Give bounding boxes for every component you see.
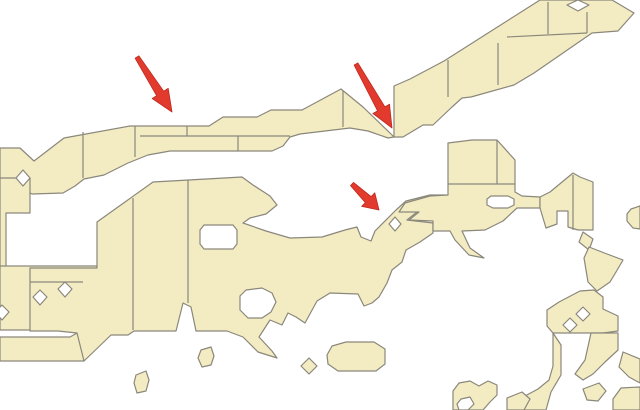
annotation-arrow-3 (351, 182, 380, 210)
se-band-east (575, 333, 618, 380)
right-east-piece (540, 173, 593, 230)
hole-rounded-rect (200, 225, 237, 249)
central-mass (30, 177, 447, 361)
island-diamond (301, 358, 317, 374)
se-link-b (584, 247, 623, 291)
island-hex-west (134, 371, 149, 393)
map-canvas[interactable] (0, 0, 640, 410)
top-band-east (394, 0, 634, 137)
island-hex-mid (198, 347, 214, 367)
se-fragment (583, 383, 606, 401)
annotation-arrow-1 (135, 56, 172, 112)
island-blob (327, 342, 385, 371)
right-edge-blob (627, 206, 640, 229)
regions-layer (0, 0, 640, 410)
corner-piece (613, 387, 640, 410)
map-viewport (0, 0, 640, 410)
hole-oval (487, 196, 514, 208)
right-edge-wedge (619, 352, 640, 383)
top-band-west (0, 89, 394, 194)
left-edge-block (0, 178, 30, 273)
